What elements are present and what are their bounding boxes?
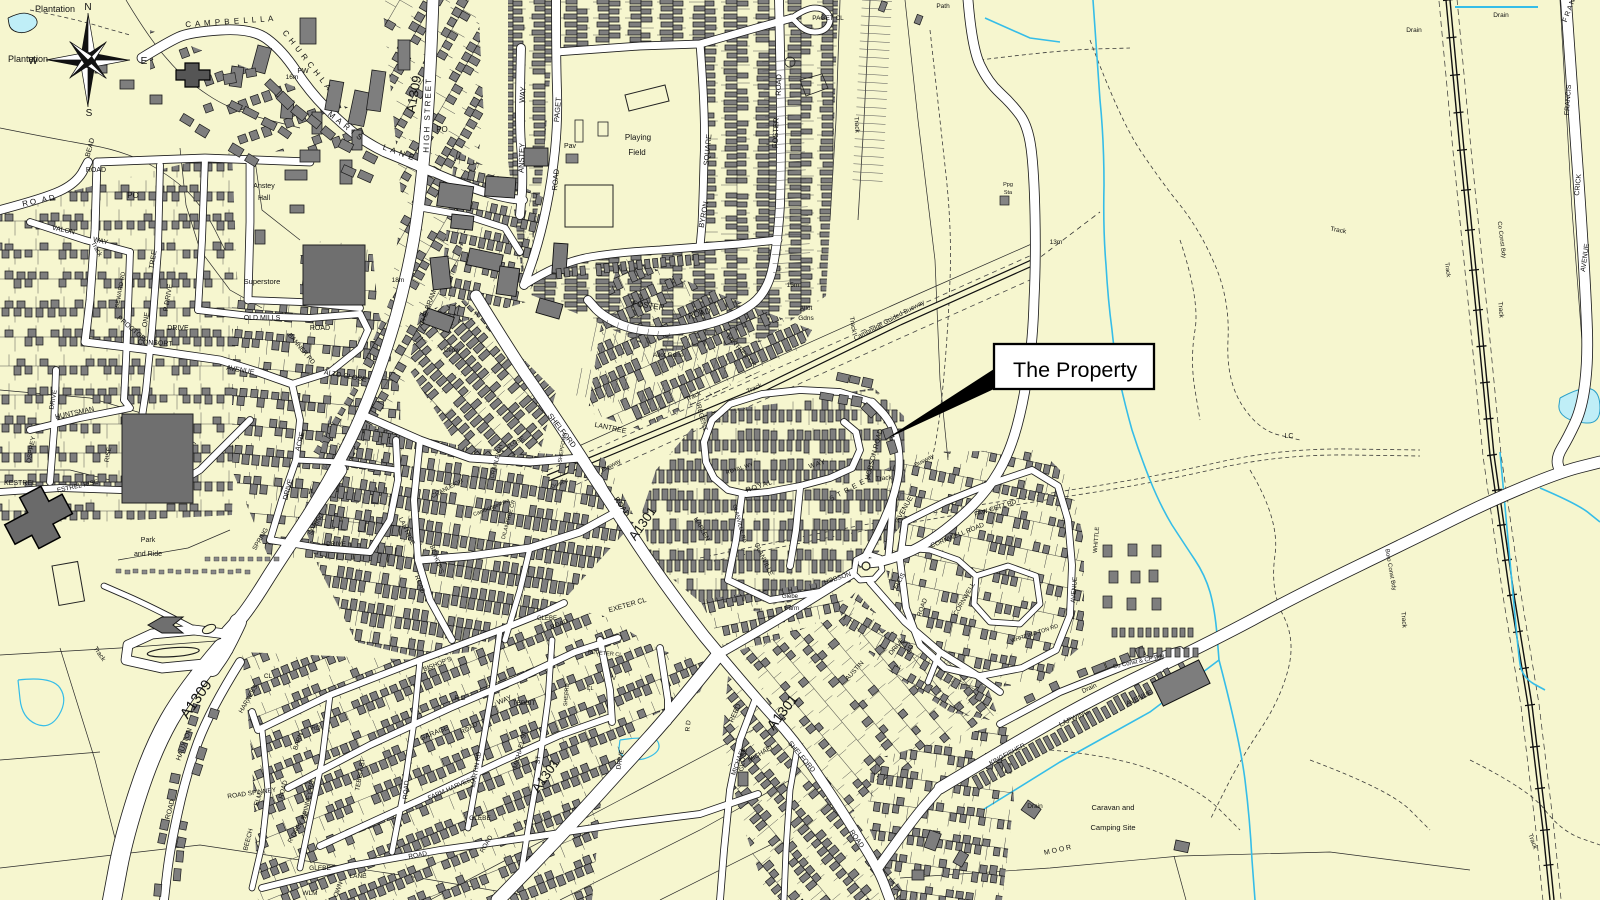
svg-text:Gdns: Gdns (798, 315, 814, 322)
svg-text:E: E (141, 56, 148, 67)
svg-text:GLEBE: GLEBE (537, 616, 557, 622)
svg-text:W: W (28, 56, 38, 67)
svg-text:KESTREL: KESTREL (4, 480, 36, 487)
svg-text:15m: 15m (787, 282, 800, 289)
svg-text:CL: CL (264, 673, 273, 680)
svg-text:OLD MILLS: OLD MILLS (244, 315, 281, 322)
svg-text:Track: Track (852, 117, 860, 134)
svg-text:DRIVE: DRIVE (326, 541, 347, 548)
svg-text:CL: CL (586, 686, 593, 692)
svg-text:Field: Field (628, 148, 645, 157)
svg-text:and Ride: and Ride (134, 551, 162, 558)
svg-text:Drain: Drain (1493, 12, 1509, 19)
svg-text:Park: Park (141, 537, 156, 544)
svg-text:Allot: Allot (800, 305, 813, 312)
svg-text:Track: Track (1399, 612, 1407, 629)
svg-text:R D: R D (685, 720, 693, 732)
svg-text:LC: LC (1285, 433, 1294, 440)
svg-text:RD: RD (311, 725, 321, 732)
svg-text:N: N (84, 2, 91, 13)
svg-text:Anstey: Anstey (253, 183, 275, 190)
svg-text:Cemy: Cemy (444, 348, 460, 354)
svg-text:ROAD: ROAD (86, 167, 106, 174)
svg-text:ST: ST (535, 755, 543, 764)
svg-text:Allot Gdns: Allot Gdns (653, 352, 684, 359)
svg-text:Hall: Hall (258, 195, 271, 202)
svg-text:R D: R D (454, 695, 466, 702)
svg-text:Glebe: Glebe (782, 594, 799, 600)
svg-text:16m: 16m (286, 74, 299, 81)
svg-text:Drain: Drain (1406, 27, 1422, 34)
svg-text:The Property: The Property (1013, 358, 1138, 382)
svg-text:V: V (612, 676, 616, 682)
svg-text:13m: 13m (1050, 239, 1063, 246)
svg-text:Camping Site: Camping Site (1090, 823, 1135, 832)
svg-text:Sta: Sta (1004, 190, 1013, 196)
svg-text:PW: PW (297, 68, 309, 75)
svg-text:18m: 18m (392, 277, 405, 284)
svg-text:Track: Track (1496, 302, 1504, 319)
svg-text:ROAD: ROAD (774, 73, 784, 96)
svg-text:GLEBE: GLEBE (469, 815, 491, 822)
svg-text:DRIVE: DRIVE (167, 325, 189, 332)
svg-text:LANE: LANE (350, 873, 368, 880)
svg-text:Playing: Playing (625, 133, 651, 142)
svg-text:WAY: WAY (517, 86, 527, 103)
svg-text:FOSTER: FOSTER (770, 117, 780, 148)
svg-text:ANSTEY: ANSTEY (516, 143, 526, 173)
svg-text:Caravan and: Caravan and (1092, 803, 1135, 812)
svg-text:GLEBE: GLEBE (309, 865, 331, 872)
svg-text:PAGET CL: PAGET CL (812, 15, 844, 22)
svg-text:GET CL: GET CL (588, 0, 612, 2)
svg-text:Track: Track (876, 474, 893, 482)
svg-text:Plantation: Plantation (35, 4, 75, 14)
svg-text:Pav: Pav (564, 143, 577, 150)
svg-text:WLM: WLM (302, 890, 317, 897)
svg-text:Ppg: Ppg (1003, 182, 1013, 188)
svg-text:PO: PO (127, 191, 139, 200)
svg-text:PO: PO (436, 125, 448, 134)
svg-text:ROAD: ROAD (310, 325, 330, 332)
svg-text:Path: Path (936, 3, 950, 10)
svg-text:S: S (86, 108, 93, 119)
svg-text:TEBBIT: TEBBIT (513, 700, 536, 707)
svg-text:Drain: Drain (1027, 803, 1043, 810)
svg-text:Superstore: Superstore (244, 277, 281, 286)
svg-text:Farm: Farm (785, 606, 799, 612)
